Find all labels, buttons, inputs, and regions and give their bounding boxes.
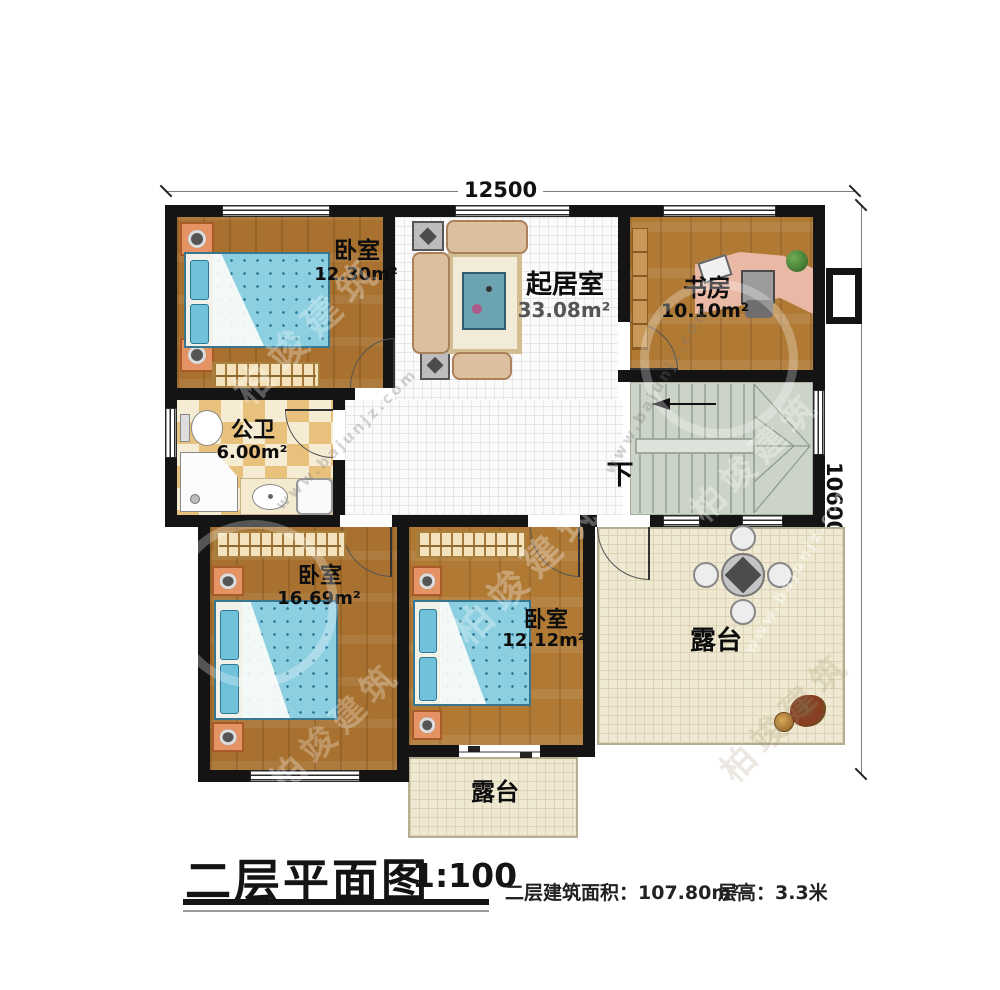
door-leaf bbox=[390, 527, 392, 577]
wall bbox=[397, 527, 409, 782]
bed-sheet bbox=[242, 602, 290, 718]
wall bbox=[813, 217, 825, 390]
window bbox=[222, 205, 330, 217]
wardrobe bbox=[214, 531, 346, 558]
room-area: 10.10m² bbox=[661, 302, 749, 321]
wall bbox=[360, 770, 409, 782]
window bbox=[663, 515, 700, 527]
pillow bbox=[220, 610, 239, 660]
wall bbox=[618, 217, 630, 322]
footer-area-label: 二层建筑面积： bbox=[505, 882, 638, 904]
desk-chair bbox=[745, 300, 773, 318]
wall bbox=[570, 205, 663, 217]
wardrobe bbox=[212, 362, 320, 388]
patio-table bbox=[721, 553, 765, 597]
bed-sheet bbox=[212, 254, 264, 346]
wall bbox=[165, 217, 177, 408]
pillow bbox=[419, 609, 437, 653]
bay-window-outline bbox=[826, 268, 862, 324]
wall bbox=[330, 205, 455, 217]
wall bbox=[198, 527, 210, 782]
ottoman bbox=[452, 352, 512, 380]
patio-chair bbox=[693, 562, 719, 588]
floor-plan-sheet: 12500 10600 bbox=[0, 0, 1000, 990]
room-area: 16.69m² bbox=[277, 590, 361, 608]
wall bbox=[776, 205, 825, 217]
wall bbox=[783, 515, 825, 527]
bookshelf bbox=[632, 228, 648, 350]
washing-machine bbox=[296, 478, 333, 515]
pillow bbox=[190, 304, 209, 344]
window bbox=[813, 390, 825, 455]
room-label: 卧室 bbox=[524, 610, 568, 632]
room-label: 起居室 bbox=[526, 272, 604, 298]
sheet-scale: 1:100 bbox=[412, 856, 517, 895]
door-leaf bbox=[578, 527, 580, 577]
wall bbox=[700, 515, 742, 527]
bed bbox=[184, 252, 330, 348]
room-label: 露台 bbox=[690, 628, 742, 654]
shower-drain bbox=[190, 494, 200, 504]
wall bbox=[540, 745, 595, 757]
room-area: 6.00m² bbox=[216, 444, 287, 462]
wall bbox=[165, 205, 222, 217]
title-rule-thin bbox=[183, 910, 489, 912]
plant-pot bbox=[774, 712, 794, 732]
patio-chair bbox=[767, 562, 793, 588]
wall bbox=[409, 745, 459, 757]
nightstand bbox=[212, 566, 244, 596]
plant-icon bbox=[786, 250, 808, 272]
footer-height-value: 3.3米 bbox=[775, 882, 828, 904]
sofa bbox=[446, 220, 528, 254]
pillow bbox=[419, 657, 437, 701]
footer-floor-height: 层高：3.3米 bbox=[718, 878, 828, 905]
monitor bbox=[741, 270, 775, 304]
table-decor bbox=[472, 304, 482, 314]
room-label: 卧室 bbox=[298, 566, 342, 588]
dimension-top-value: 12500 bbox=[458, 178, 543, 202]
bed bbox=[214, 600, 338, 720]
corridor-floor bbox=[345, 400, 623, 515]
stairs-direction-label: 下 bbox=[607, 462, 634, 489]
window bbox=[663, 205, 776, 217]
staircase bbox=[630, 382, 813, 515]
wall bbox=[333, 460, 345, 515]
window bbox=[455, 205, 570, 217]
room-label: 卧室 bbox=[334, 240, 380, 263]
toilet-tank bbox=[180, 414, 190, 442]
wall bbox=[618, 370, 825, 382]
wall bbox=[650, 515, 663, 527]
room-area: 12.12m² bbox=[502, 632, 586, 650]
window bbox=[250, 770, 360, 782]
door-leaf bbox=[285, 409, 333, 411]
sink-drain bbox=[268, 494, 273, 499]
table-decor bbox=[486, 286, 492, 292]
title-rule-thick bbox=[183, 899, 489, 905]
nightstand bbox=[180, 222, 214, 256]
patio-table-top bbox=[725, 557, 762, 594]
wall bbox=[198, 770, 250, 782]
door-leaf bbox=[630, 368, 678, 370]
wardrobe bbox=[416, 531, 526, 558]
bed bbox=[413, 600, 531, 706]
nightstand bbox=[412, 710, 442, 740]
nightstand bbox=[212, 722, 244, 752]
room-area: 33.08m² bbox=[518, 300, 611, 320]
door-leaf bbox=[393, 338, 395, 388]
pillow bbox=[190, 260, 209, 300]
speaker bbox=[412, 221, 444, 251]
coffee-table bbox=[462, 272, 506, 330]
toilet-bowl bbox=[191, 410, 223, 446]
patio-chair bbox=[730, 525, 756, 551]
nightstand bbox=[412, 566, 442, 596]
bed-sheet bbox=[440, 602, 486, 704]
wall bbox=[392, 515, 528, 527]
door-leaf bbox=[648, 527, 650, 580]
wall bbox=[333, 400, 345, 410]
terrace-door-panel bbox=[468, 746, 480, 752]
patio-chair bbox=[730, 599, 756, 625]
room-label: 露台 bbox=[471, 780, 519, 804]
sofa bbox=[412, 252, 450, 354]
speaker bbox=[420, 350, 450, 380]
wall bbox=[580, 515, 597, 527]
window bbox=[165, 408, 177, 458]
room-area: 12.30m² bbox=[314, 266, 398, 284]
room-label: 书房 bbox=[683, 276, 731, 300]
room-label: 公卫 bbox=[231, 420, 275, 442]
wall bbox=[165, 515, 340, 527]
footer-area: 二层建筑面积：107.80m² bbox=[505, 878, 739, 905]
footer-height-label: 层高： bbox=[718, 882, 775, 904]
terrace-door-panel bbox=[520, 752, 532, 758]
pillow bbox=[220, 664, 239, 714]
wall bbox=[165, 388, 355, 400]
